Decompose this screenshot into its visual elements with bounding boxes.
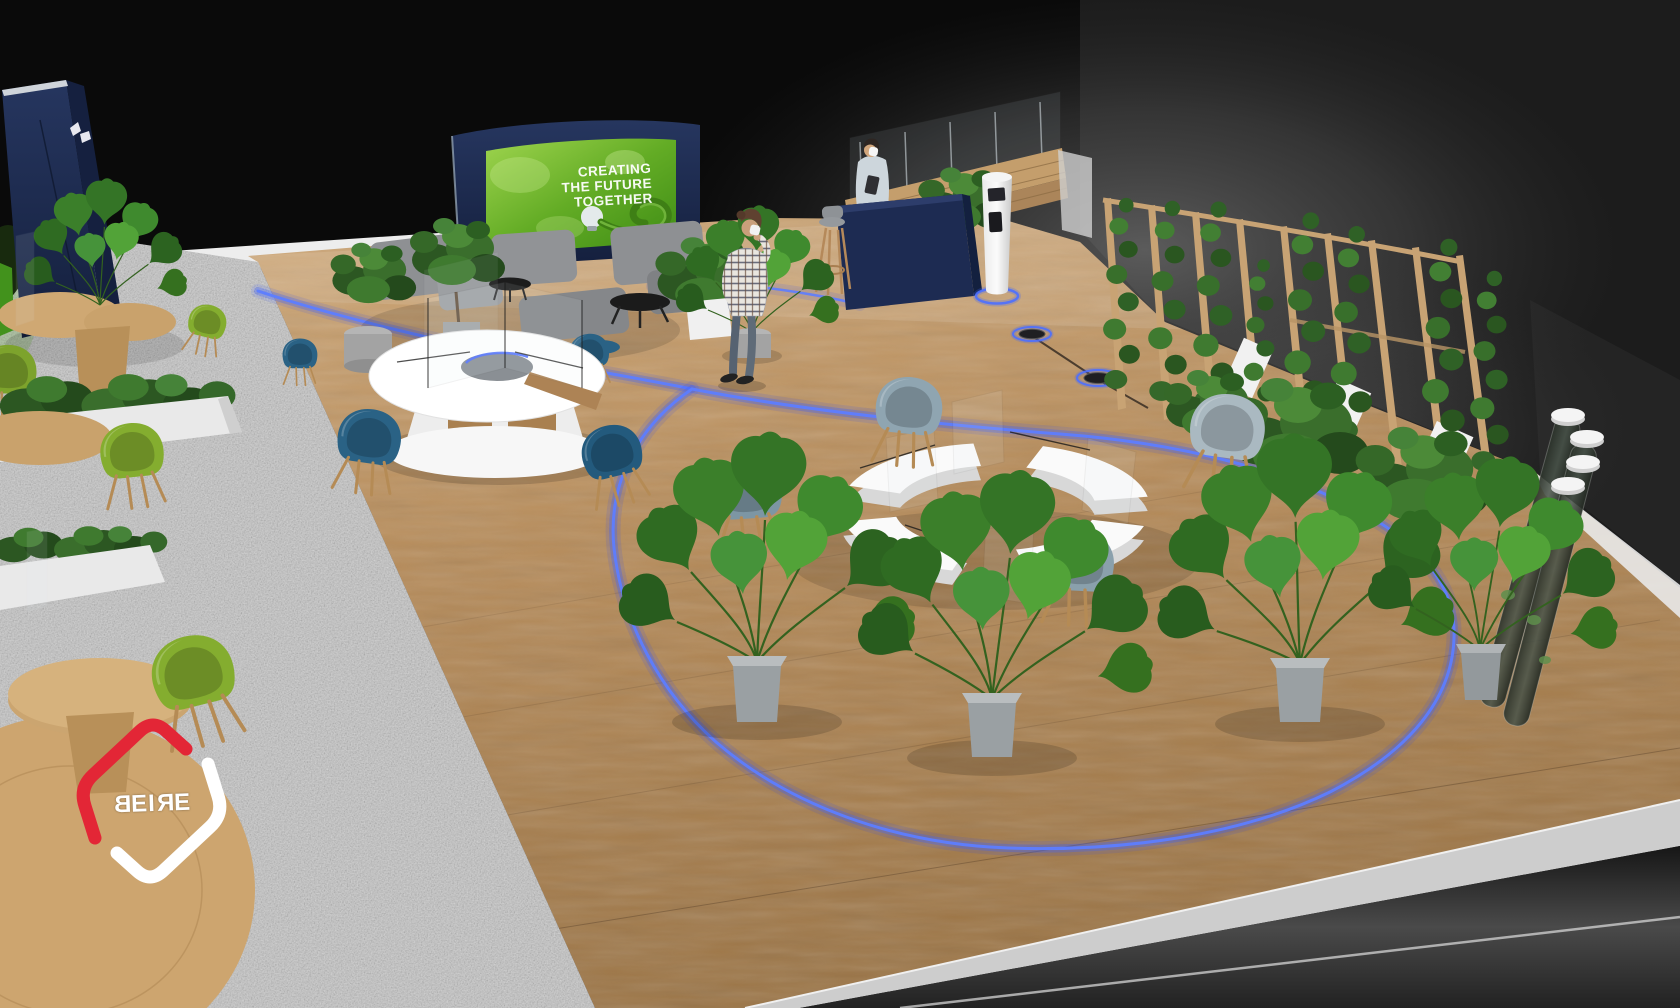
logo-text: BEIRE <box>102 788 203 819</box>
glass-screen <box>27 528 47 612</box>
glass-screen <box>16 232 34 326</box>
exhibition-stand-render: CREATING THE FUTURE TOGETHER <box>0 0 1680 1008</box>
reception-counter <box>836 194 982 310</box>
white-wall-end <box>1058 150 1092 238</box>
